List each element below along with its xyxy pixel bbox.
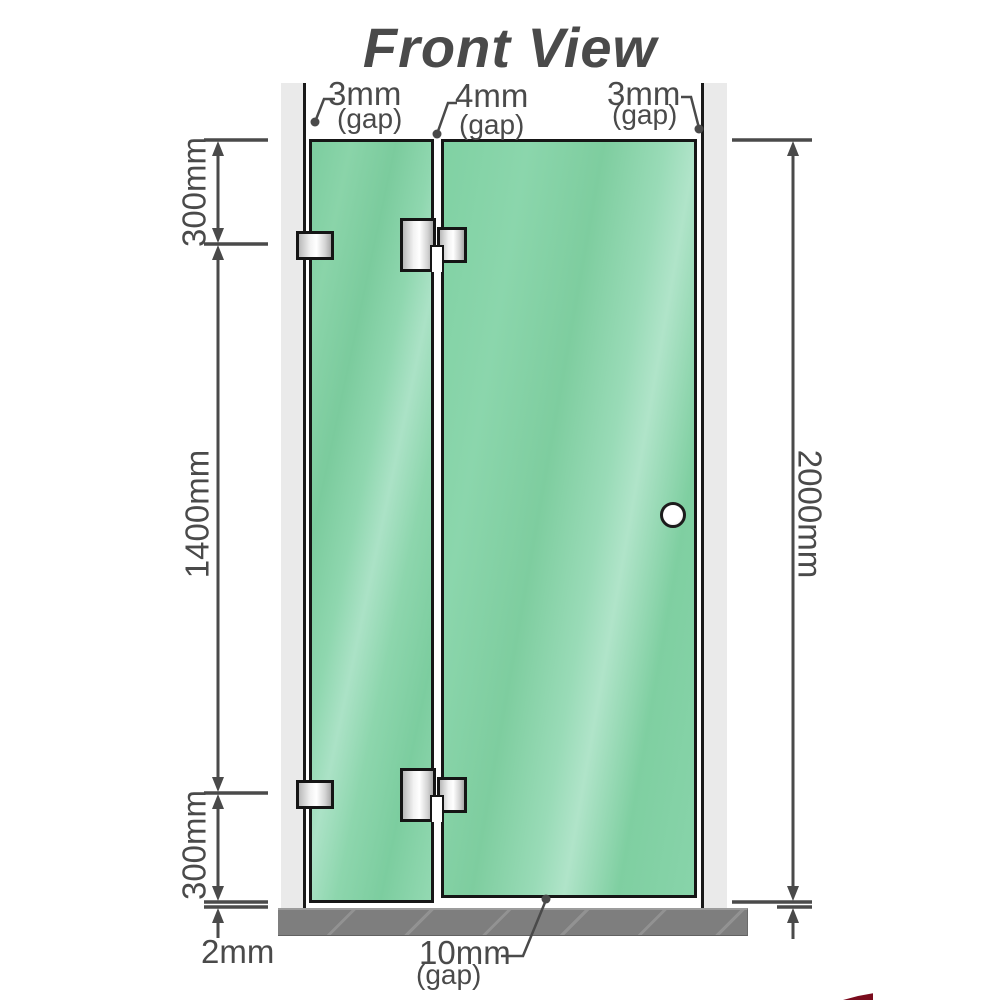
dim-label-middle-1400mm: 1400mm <box>181 450 214 578</box>
door-handle-knob <box>660 502 686 528</box>
front-view-diagram: Front View <box>0 0 1000 1000</box>
hinge-notch <box>430 245 444 272</box>
hinge-notch <box>430 795 444 822</box>
glass-hinge-bottom <box>400 768 467 822</box>
dim-label-top-300mm: 300mm <box>178 137 211 247</box>
door-glass-panel <box>441 139 697 898</box>
dim-label-bottom-300mm: 300mm <box>178 790 211 900</box>
dim-label-floor-gap-2mm: 2mm <box>201 935 274 968</box>
page-title: Front View <box>310 20 710 76</box>
floor-base <box>278 908 748 936</box>
wall-bracket-bottom <box>296 780 334 809</box>
gap-label-top-right-note: (gap) <box>612 101 677 129</box>
dim-label-total-2000mm: 2000mm <box>794 450 827 578</box>
gap-label-top-left-note: (gap) <box>337 105 402 133</box>
right-wall <box>701 83 727 908</box>
logo-fragment <box>843 992 873 1000</box>
wall-bracket-top <box>296 231 334 260</box>
gap-label-top-middle-value: 4mm <box>455 79 528 112</box>
gap-label-bottom-note: (gap) <box>416 961 481 989</box>
gap-label-top-middle-note: (gap) <box>459 111 524 139</box>
glass-hinge-top <box>400 218 467 272</box>
